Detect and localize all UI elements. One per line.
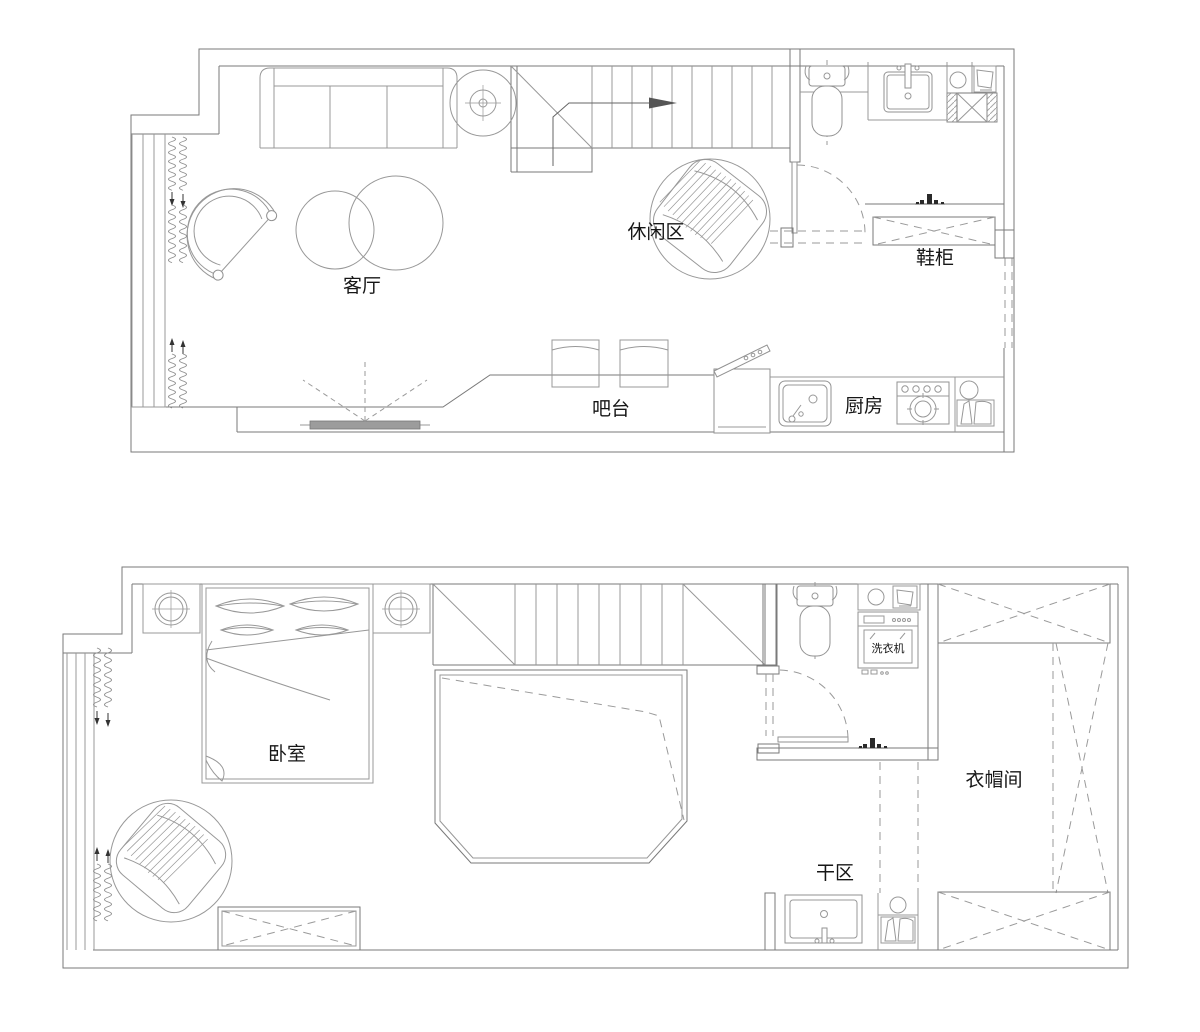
lower-floor-plan: 洗衣机	[63, 567, 1128, 968]
bath-counter	[858, 584, 920, 610]
staircase-upper	[511, 66, 790, 172]
sofa-symbol	[260, 68, 457, 148]
upper-window	[131, 134, 166, 407]
staircase-lower	[433, 584, 777, 666]
round-side-table-symbol	[450, 70, 516, 136]
upper-curtain	[169, 137, 187, 408]
lower-window	[67, 653, 94, 950]
kitchen-label: 厨房	[845, 395, 883, 417]
lounge-chair-symbol	[109, 796, 233, 922]
kitchen-sink-symbol	[779, 381, 831, 426]
bedroom-label: 卧室	[268, 743, 306, 765]
bar-stools-symbol	[552, 340, 668, 387]
floor-plan-page: 客厅 休闲区 鞋柜 吧台 厨房	[0, 0, 1200, 1032]
sink-symbol	[884, 64, 932, 112]
washing-machine-label: 洗衣机	[872, 641, 905, 655]
vanity-sink-symbol	[785, 895, 862, 943]
leisure-area-label: 休闲区	[627, 221, 684, 243]
toilet-symbol	[793, 582, 837, 662]
bathroom-lower: 洗衣机	[757, 582, 938, 760]
upper-walls	[131, 49, 1014, 452]
kitchen-symbols	[714, 345, 1004, 433]
door-leaf	[778, 737, 848, 742]
washing-machine-symbol: 洗衣机	[858, 612, 918, 674]
bed-platform-symbol	[435, 670, 687, 863]
shoe-cabinet-label: 鞋柜	[916, 247, 954, 269]
bar-counter-label: 吧台	[592, 398, 630, 420]
nightstand-left	[143, 584, 200, 633]
threshold-symbol	[858, 738, 888, 748]
mop-sink-unit	[878, 893, 918, 950]
cloakroom-wardrobes	[938, 584, 1110, 950]
upper-floor-plan: 客厅 休闲区 鞋柜 吧台 厨房	[131, 49, 1014, 452]
low-cabinet-symbol	[218, 907, 360, 950]
toilet-symbol	[805, 60, 849, 145]
stair-direction-arrow-icon	[649, 98, 677, 109]
living-room-label: 客厅	[343, 275, 381, 297]
door-swing-arc	[797, 165, 865, 233]
armchair-symbol	[167, 169, 280, 284]
kitchen-corner-unit	[955, 377, 994, 432]
door-leaf	[792, 162, 797, 233]
dry-area-label: 干区	[816, 863, 854, 884]
coffee-tables-symbol	[296, 176, 443, 270]
leisure-chair-symbol	[644, 150, 775, 280]
floor-plan-canvas: 客厅 休闲区 鞋柜 吧台 厨房	[0, 0, 1200, 1032]
cloakroom-label: 衣帽间	[965, 769, 1022, 791]
dry-area	[765, 893, 918, 950]
threshold-symbol	[915, 194, 945, 204]
lower-curtain	[94, 648, 112, 921]
stove-symbol	[897, 382, 949, 425]
fridge-symbol	[714, 345, 770, 433]
nightstand-right	[373, 584, 430, 633]
duct-shaft-symbol	[947, 93, 997, 122]
corridor-dashes	[880, 762, 918, 893]
door-swing-arc	[778, 670, 848, 738]
tv-symbol	[300, 361, 430, 429]
